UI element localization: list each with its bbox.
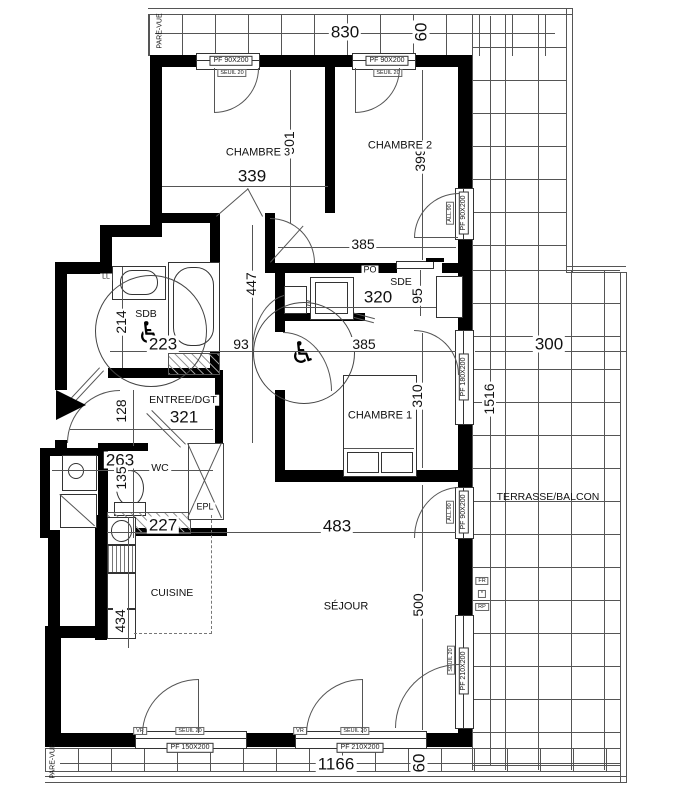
rp-box: RP xyxy=(475,603,489,611)
terrace-outline xyxy=(572,8,573,272)
door-leaf xyxy=(216,188,248,216)
door-swing xyxy=(214,68,259,113)
wall xyxy=(150,213,213,223)
door-swing xyxy=(142,679,199,734)
door-leaf xyxy=(355,68,356,112)
sde-cabinet xyxy=(436,276,463,318)
po-label: PO xyxy=(361,266,378,275)
pare-vue-label-bottom: PARE-VUE xyxy=(50,741,57,780)
wall xyxy=(245,733,295,747)
terrace-upper-tiles xyxy=(472,14,566,272)
wall xyxy=(325,67,335,213)
room-label-chambre1: CHAMBRE 1 xyxy=(346,411,414,422)
door-swing xyxy=(414,193,459,238)
balcony-outline xyxy=(45,776,626,777)
door-swing xyxy=(414,330,459,375)
dim-1516: 1516 xyxy=(482,381,496,416)
dim-128: 128 xyxy=(114,397,128,424)
room-label-cuisine: CUISINE xyxy=(149,588,196,599)
sliding-door-leaf xyxy=(426,258,444,262)
dim-line xyxy=(162,186,328,187)
window-label: PF 210X200 xyxy=(459,648,469,695)
kitchen-unit xyxy=(107,573,136,609)
wall xyxy=(150,55,162,225)
kitchen-drainer xyxy=(107,545,136,573)
room-label-wc: WC xyxy=(149,463,171,474)
door-swing xyxy=(414,487,459,538)
entrance-arrow-icon xyxy=(56,390,86,420)
dim-310: 310 xyxy=(410,382,424,409)
dim-line xyxy=(128,517,129,648)
vr-tag: VR xyxy=(293,727,307,735)
door-swing xyxy=(270,218,315,263)
terrace-outline xyxy=(566,8,567,272)
dim-339: 339 xyxy=(236,168,268,185)
dim-483: 483 xyxy=(321,518,353,535)
dim-434: 434 xyxy=(113,607,127,634)
dim-227: 227 xyxy=(147,517,179,534)
room-label-epl: EPL xyxy=(194,503,215,512)
ll-label: LL xyxy=(100,274,112,281)
dim-223: 223 xyxy=(147,336,179,353)
terrace-outline xyxy=(620,272,621,783)
dim-line xyxy=(133,390,134,446)
terrace-outline xyxy=(566,266,626,267)
window-label: PF 90X200 xyxy=(459,191,469,234)
wall xyxy=(458,423,472,487)
room-label-sejour: SÉJOUR xyxy=(322,602,371,613)
door-leaf xyxy=(198,679,199,733)
wall xyxy=(458,537,472,615)
sliding-door xyxy=(396,261,434,269)
window-label: PF 90X200 xyxy=(365,56,408,66)
dim-line xyxy=(70,429,213,430)
dim-385-chambre1: 385 xyxy=(350,337,377,351)
dim-135: 135 xyxy=(114,464,128,491)
wall xyxy=(425,733,472,747)
window-label: PF 180X200 xyxy=(459,354,469,401)
dim-93: 93 xyxy=(231,337,251,351)
dim-385-upper: 385 xyxy=(349,237,376,251)
dim-214: 214 xyxy=(114,308,128,335)
window-label: PF 210X200 xyxy=(337,743,384,753)
room-label-chambre3: CHAMBRE 3 xyxy=(224,148,292,159)
wall xyxy=(48,530,60,632)
wall xyxy=(40,448,50,538)
dim-95: 95 xyxy=(410,286,424,306)
window-label: PF 150X200 xyxy=(167,743,214,753)
balcony-outline xyxy=(148,8,572,9)
room-label-terrasse: TERRASSE/BALCON xyxy=(495,492,602,503)
wall xyxy=(275,263,397,273)
door-leaf xyxy=(247,188,263,217)
wall xyxy=(442,263,458,273)
door-swing xyxy=(395,664,459,728)
dim-447: 447 xyxy=(244,270,258,297)
dim-1166: 1166 xyxy=(316,756,357,773)
floor-plan: PF 90X200 PF 90X200 SEUIL 20 SEUIL 20 PF… xyxy=(0,0,682,800)
window-label: PF 90X200 xyxy=(209,56,252,66)
terrace-outline xyxy=(626,272,627,783)
room-label-sde: SDE xyxy=(388,277,414,288)
door-leaf xyxy=(414,237,458,238)
dim-60-top: 60 xyxy=(413,21,430,44)
door-swing xyxy=(306,679,363,734)
dim-321: 321 xyxy=(168,409,200,426)
door-swing xyxy=(355,68,400,113)
pillow xyxy=(381,452,413,473)
window-label: PF 90X200 xyxy=(459,490,469,533)
dim-line xyxy=(285,307,436,308)
wall xyxy=(458,55,472,188)
balcony-outline xyxy=(45,782,626,783)
wall xyxy=(275,390,285,473)
wall xyxy=(60,626,98,638)
wall xyxy=(215,370,223,445)
dim-320: 320 xyxy=(362,289,394,306)
star-box: * xyxy=(478,590,486,598)
pare-vue-label-top: PARE-VUE xyxy=(157,11,164,50)
room-label-entree: ENTREE/DGT xyxy=(147,395,219,406)
wheelchair-icon: ♿ xyxy=(290,339,317,369)
dim-300: 300 xyxy=(533,336,565,353)
fr-box: FR xyxy=(475,577,488,585)
wall xyxy=(258,55,352,67)
wall xyxy=(95,515,107,640)
bed-line xyxy=(344,448,414,449)
dim-500: 500 xyxy=(411,591,425,618)
room-label-sdb: SDB xyxy=(133,309,159,320)
hand-basin-bowl xyxy=(68,463,84,479)
pillow xyxy=(347,452,379,473)
room-label-chambre2: CHAMBRE 2 xyxy=(366,141,434,152)
dim-830: 830 xyxy=(329,24,361,41)
door-leaf xyxy=(214,68,215,112)
wall xyxy=(45,626,61,740)
dim-line xyxy=(252,225,253,443)
dim-60-bottom: 60 xyxy=(411,752,428,775)
door-leaf xyxy=(362,679,363,733)
wall xyxy=(55,262,67,390)
